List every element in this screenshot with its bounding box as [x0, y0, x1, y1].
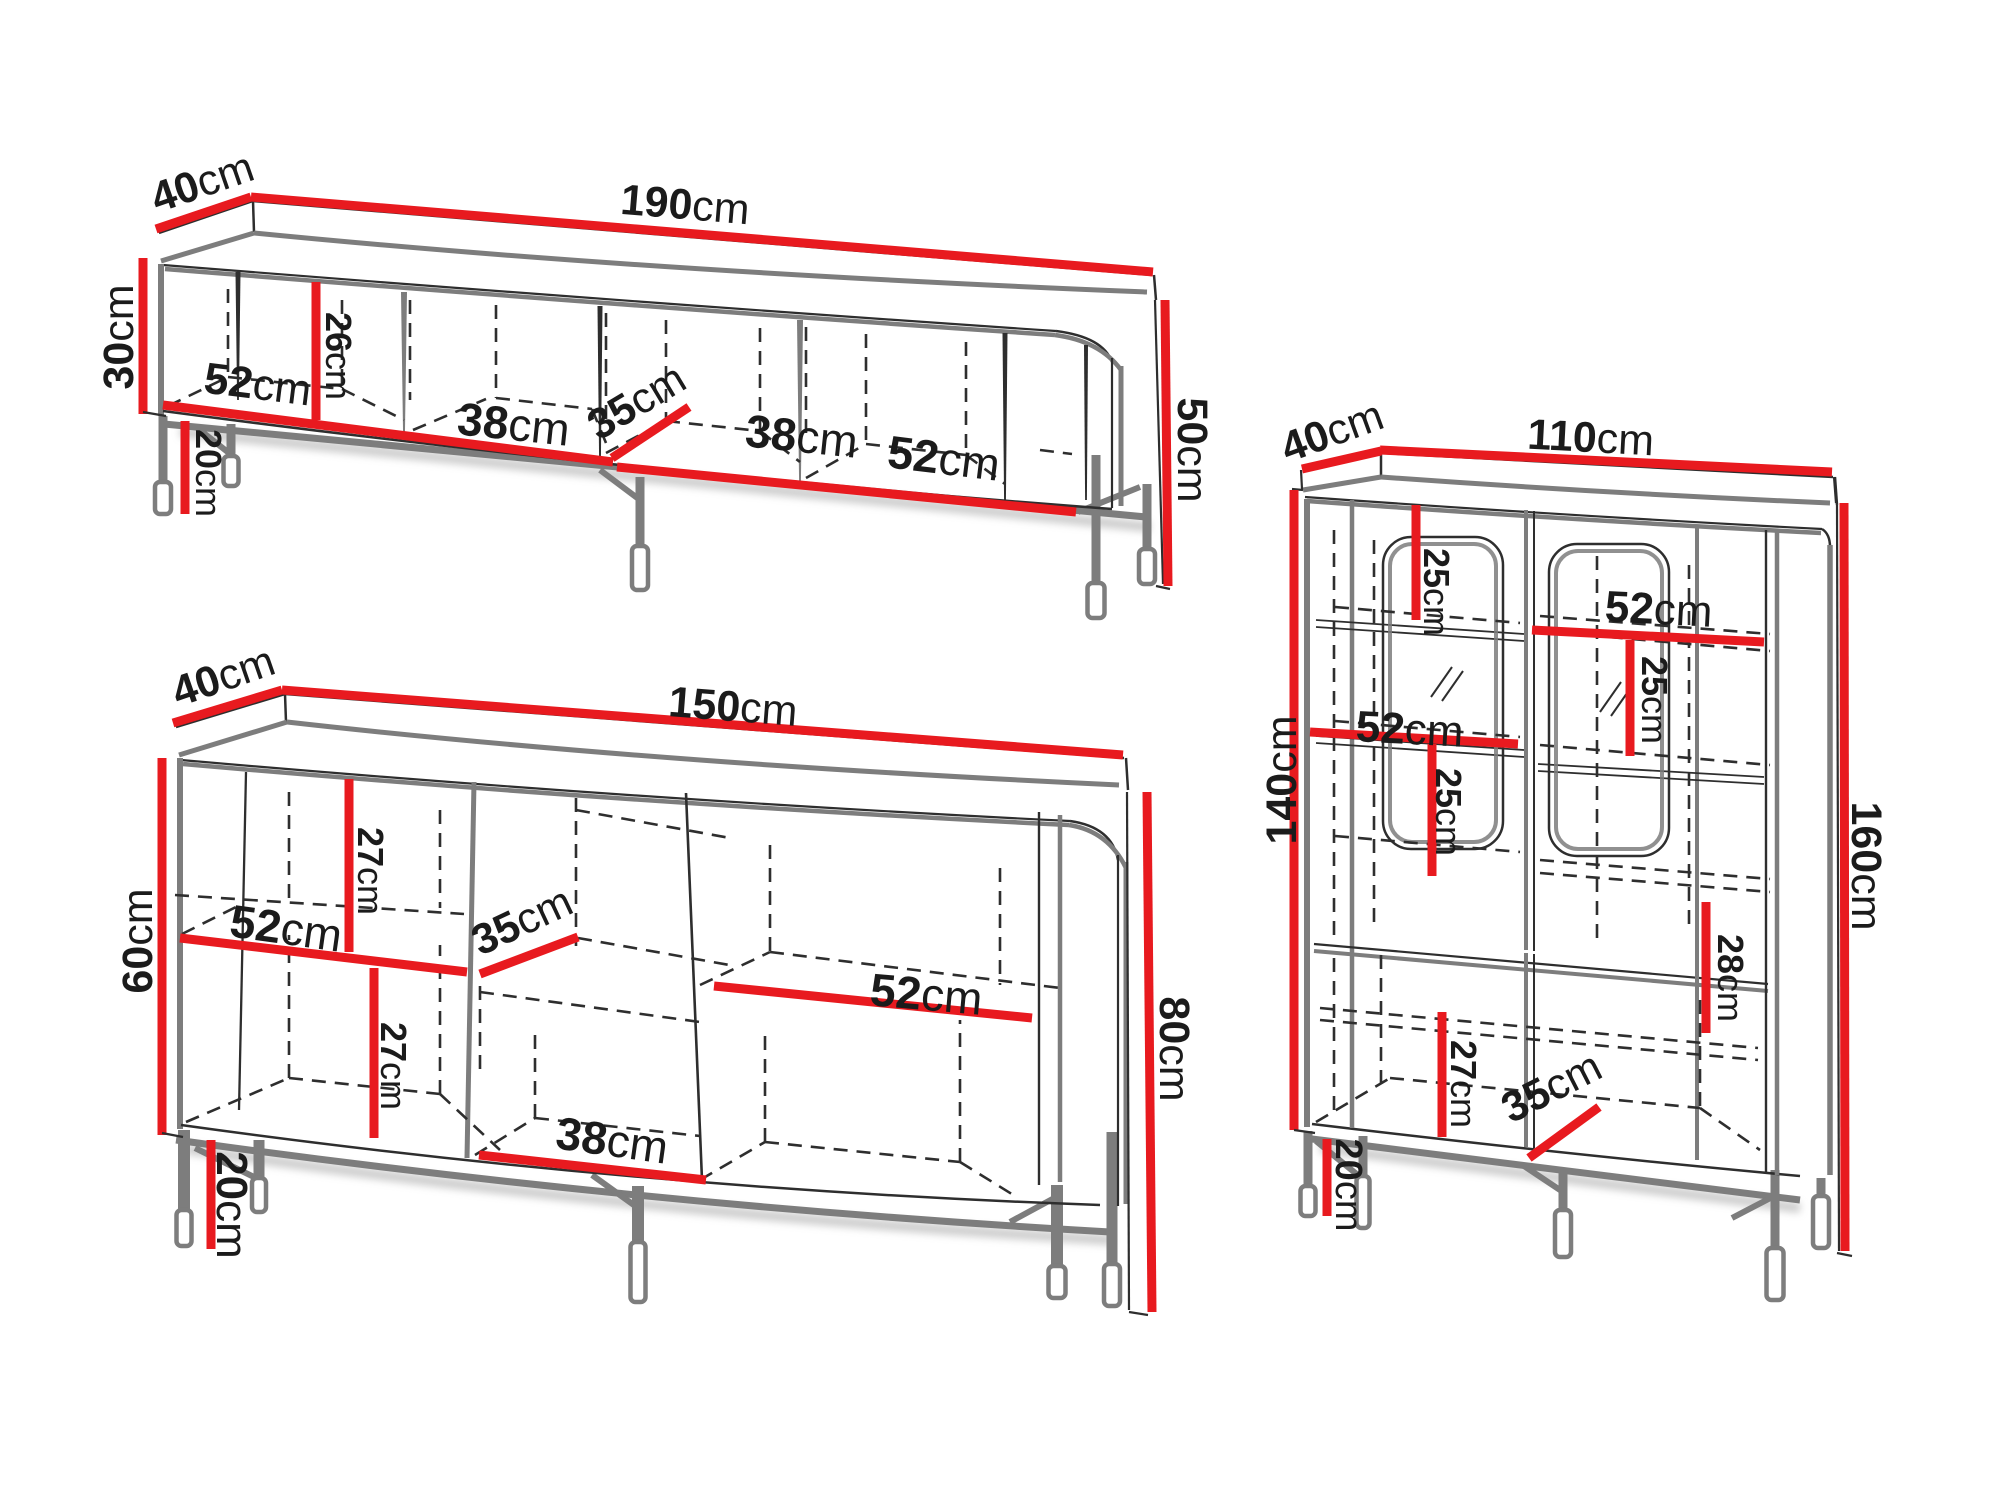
svg-text:27cm: 27cm: [373, 1022, 414, 1110]
svg-text:27cm: 27cm: [1443, 1040, 1484, 1128]
svg-text:20cm: 20cm: [188, 429, 229, 517]
svg-text:110cm: 110cm: [1526, 411, 1655, 466]
svg-text:20cm: 20cm: [1327, 1139, 1369, 1232]
svg-text:160cm: 160cm: [1842, 801, 1890, 930]
svg-text:27cm: 27cm: [350, 827, 391, 915]
svg-text:25cm: 25cm: [1416, 548, 1457, 636]
svg-text:52cm: 52cm: [868, 963, 985, 1025]
svg-text:28cm: 28cm: [1710, 934, 1751, 1022]
svg-text:140cm: 140cm: [1258, 715, 1306, 844]
svg-text:52cm: 52cm: [1604, 582, 1714, 637]
svg-text:50cm: 50cm: [1168, 397, 1216, 502]
svg-text:26cm: 26cm: [318, 312, 359, 400]
svg-text:60cm: 60cm: [114, 888, 162, 993]
svg-text:150cm: 150cm: [667, 678, 799, 736]
svg-text:25cm: 25cm: [1428, 768, 1469, 856]
svg-text:20cm: 20cm: [207, 1151, 256, 1259]
svg-text:80cm: 80cm: [1150, 996, 1198, 1101]
svg-text:30cm: 30cm: [95, 284, 143, 389]
svg-text:25cm: 25cm: [1634, 656, 1675, 744]
svg-text:52cm: 52cm: [1355, 702, 1465, 757]
